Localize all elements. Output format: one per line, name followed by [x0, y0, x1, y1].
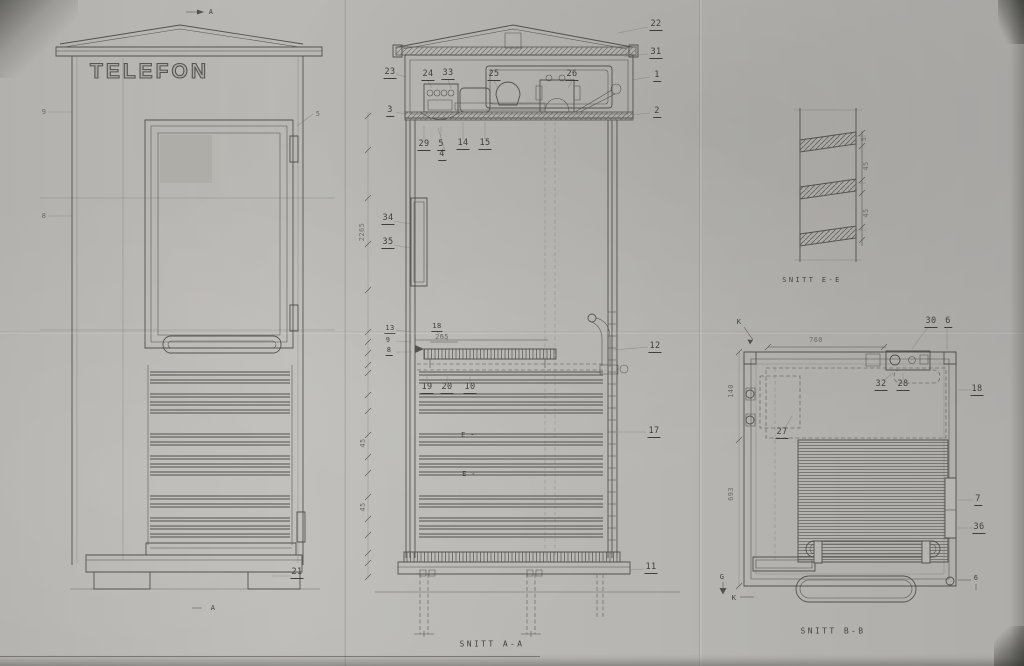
edge-shadow-right — [1010, 0, 1024, 666]
detail-ee — [794, 108, 866, 262]
corner-shadow-topleft — [0, 0, 78, 78]
blueprint-sheet: A98521A233343513982433252629514154182651… — [0, 0, 1024, 666]
caption-section-aa: SNITT A-A — [460, 640, 525, 649]
paper-edge-line — [0, 656, 540, 657]
telefon-sign: TELEFON — [90, 60, 209, 84]
caption-section-ee: SNITT E-E — [782, 276, 842, 284]
front-elevation — [40, 10, 335, 609]
fold-crease-horizontal — [0, 331, 1024, 334]
section-bb — [720, 327, 977, 602]
caption-section-bb: SNITT B-B — [801, 627, 866, 636]
